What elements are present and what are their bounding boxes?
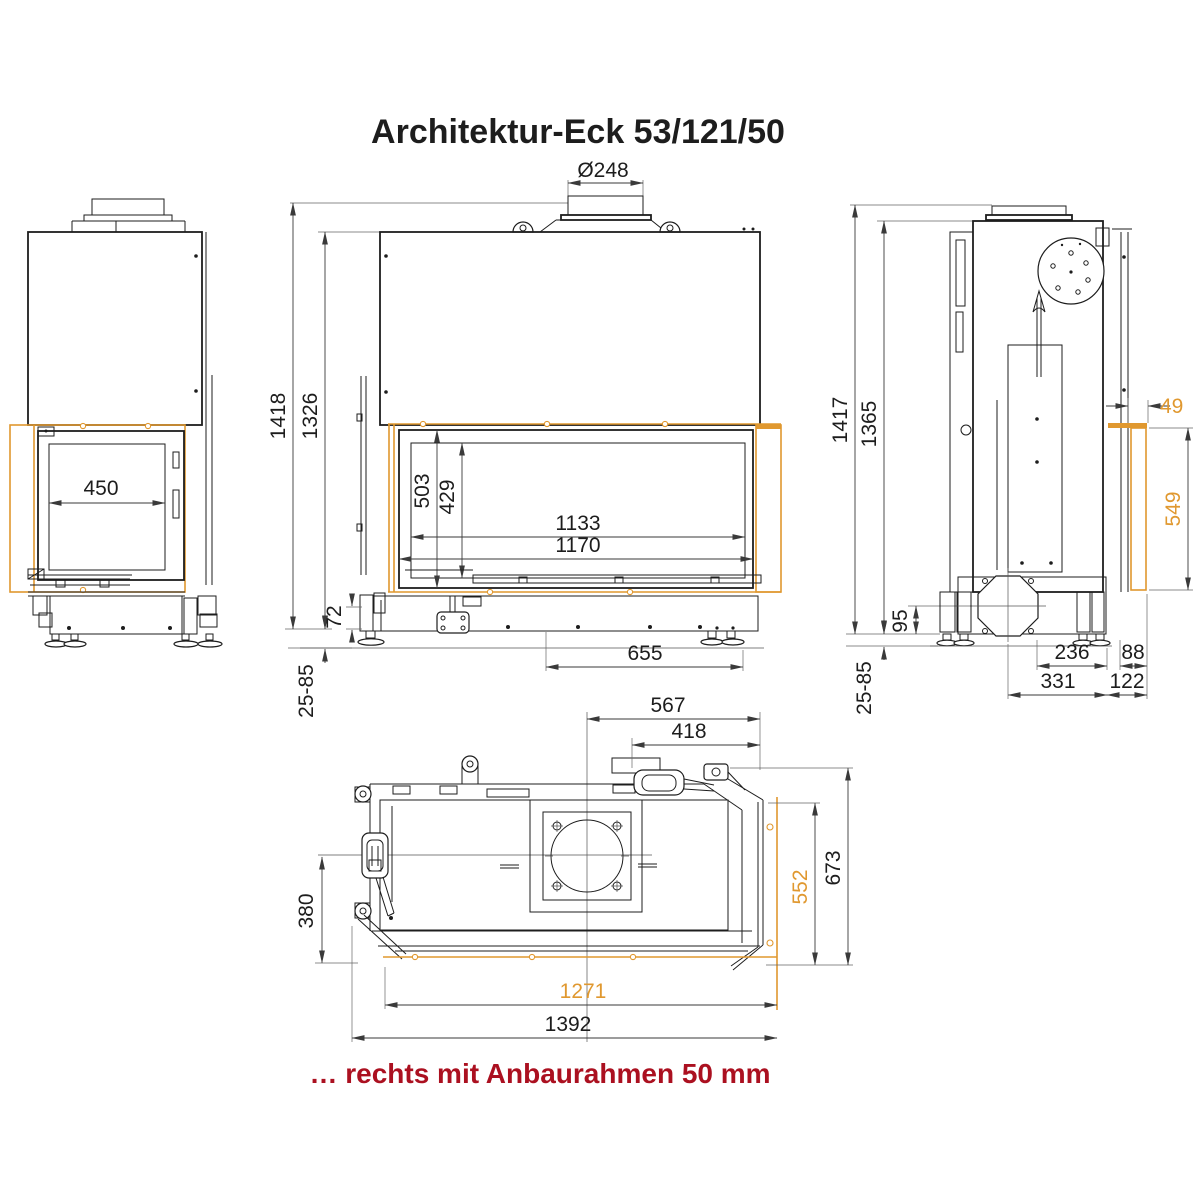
dim-right-feet-range: 25-85 xyxy=(853,661,876,715)
body-panel xyxy=(380,232,760,425)
caption: … rechts mit Anbaurahmen 50 mm xyxy=(309,1058,770,1089)
dim-front-base-length: 655 xyxy=(627,642,662,665)
body-top-outline xyxy=(380,800,728,930)
dim-right-total-height: 1417 xyxy=(829,397,852,444)
dim-top-total-depth: 673 xyxy=(822,850,845,885)
dim-right-body-height: 1365 xyxy=(858,401,881,448)
dim-front-glass-width-inner: 1133 xyxy=(555,512,600,535)
dim-front-plinth-height: 72 xyxy=(323,605,346,628)
mounting-frame-strip xyxy=(1131,428,1146,590)
dim-front-body-height: 1326 xyxy=(299,393,322,440)
side-glass-door xyxy=(38,431,184,580)
dim-front-feet-range: 25-85 xyxy=(295,664,318,718)
lifting-lug xyxy=(462,756,478,772)
dim-right-side-offset: 122 xyxy=(1109,670,1144,693)
left-side-view: 450 xyxy=(10,199,222,647)
dim-front-flue-diameter: Ø248 xyxy=(577,159,628,182)
dim-right-inlet-height: 95 xyxy=(889,609,912,632)
dim-front-glass-width-outer: 1170 xyxy=(555,534,600,557)
dim-front-glass-height-inner: 429 xyxy=(436,479,459,514)
mounting-frame-right xyxy=(756,425,781,592)
mounting-frame-left xyxy=(10,425,185,592)
dim-right-base-inner: 236 xyxy=(1054,641,1089,664)
dim-top-flue-offset: 567 xyxy=(650,694,685,717)
technical-drawing: Architektur-Eck 53/121/50 450 1418 xyxy=(0,0,1200,1200)
counterweight-cable xyxy=(1037,298,1041,377)
flue-stub-front xyxy=(568,196,643,215)
dim-top-frame-depth: 552 xyxy=(789,869,812,904)
dim-right-frame-height: 549 xyxy=(1162,491,1185,526)
flue-stub-side xyxy=(92,199,164,215)
dim-top-frame-width: 1271 xyxy=(560,980,607,1003)
dim-right-front-offset: 88 xyxy=(1121,641,1144,664)
dim-left-door-width: 450 xyxy=(83,477,118,500)
dim-right-base-outer: 331 xyxy=(1040,670,1075,693)
dim-right-frame-offset: 49 xyxy=(1160,395,1183,418)
lifting-lug xyxy=(355,786,371,802)
dim-front-total-height: 1418 xyxy=(267,393,290,440)
top-view: 567 418 380 552 673 1271 1392 xyxy=(295,694,853,1042)
body-panel xyxy=(28,232,202,425)
dim-top-latch-offset: 418 xyxy=(671,720,706,743)
lifting-lug xyxy=(355,903,371,919)
right-side-view: 1417 1365 25-85 49 549 xyxy=(829,205,1193,715)
dim-front-glass-height-outer: 503 xyxy=(411,473,434,508)
page-title: Architektur-Eck 53/121/50 xyxy=(371,113,785,151)
dim-top-front-depth: 380 xyxy=(295,893,318,928)
flue-stub-right xyxy=(992,206,1066,215)
front-view: 1418 1326 25-85 Ø248 503 429 1133 xyxy=(267,159,781,718)
dim-top-total-width: 1392 xyxy=(545,1013,592,1036)
